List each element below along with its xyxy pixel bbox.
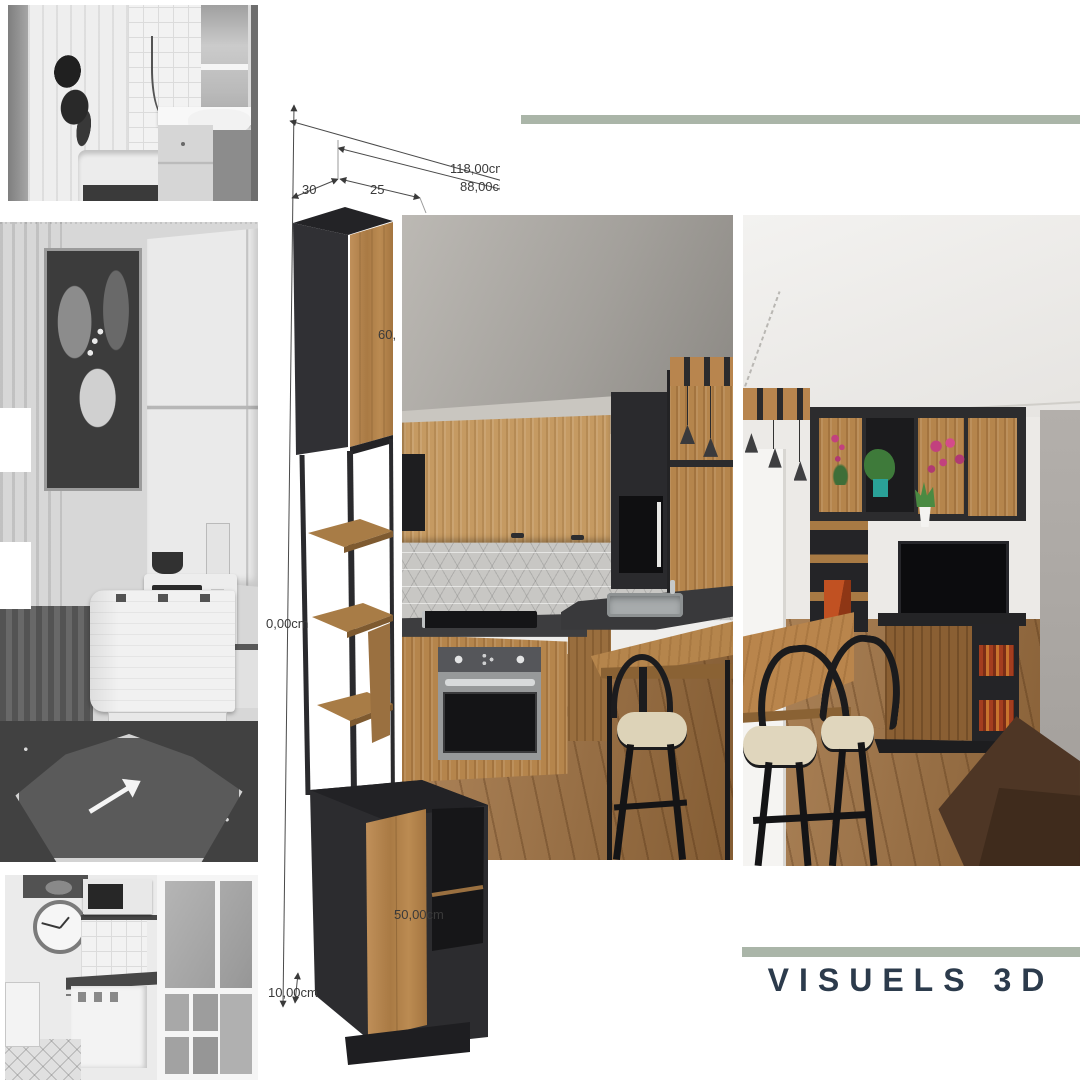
small-kitchen-microwave xyxy=(83,879,151,914)
old-kitchen-box xyxy=(206,523,229,577)
living-pendant-bulb-3 xyxy=(745,433,758,453)
living-pendant-cord-1 xyxy=(773,420,774,449)
bathroom-left-wall xyxy=(8,5,28,201)
old-kitchen-dark-floor xyxy=(0,606,93,734)
accent-bar-bottom xyxy=(742,947,1080,957)
living-plant-white-pot xyxy=(915,482,935,528)
kitchen-faucet xyxy=(670,580,675,594)
render-living-3d xyxy=(743,215,1080,866)
kitchen-cabinet-handle-1 xyxy=(511,533,524,538)
living-plant-green xyxy=(864,449,894,482)
old-kitchen-rug-arrow-icon xyxy=(83,747,150,843)
dim-label-plinth: 10,00cm xyxy=(268,985,318,1000)
old-kitchen-artwork-canvas xyxy=(47,251,139,488)
dim-label-depth: 30 xyxy=(302,182,316,197)
living-white-pot-body xyxy=(919,507,930,528)
photo-bathroom-before xyxy=(8,5,258,201)
old-kitchen-artwork xyxy=(44,248,142,491)
bathroom-vanity-doors xyxy=(158,125,213,201)
kitchen-sink xyxy=(607,593,683,618)
living-pendant-bulb-2 xyxy=(794,461,807,481)
photo-old-kitchen-main xyxy=(0,222,258,862)
small-kitchen-picture xyxy=(23,875,89,898)
kitchen-right-column xyxy=(667,370,733,609)
living-orange-box xyxy=(824,580,851,619)
living-unit-panel-3 xyxy=(968,418,1018,516)
kitchen-cabinet-handle-2 xyxy=(571,535,584,540)
living-plant-pot-teal xyxy=(873,479,888,497)
partition-panel-3 xyxy=(165,994,189,1031)
photo-old-kitchen-small xyxy=(5,875,258,1080)
dim-label-inner-width: 88,00cm xyxy=(460,179,500,194)
presentation-board: VISUELS 3D xyxy=(0,0,1080,1080)
bathroom-vanity-knob xyxy=(181,142,185,146)
kitchen-pendant-cord-1 xyxy=(687,386,688,425)
living-white-pot-leaves xyxy=(915,482,935,507)
living-beam xyxy=(743,388,810,421)
partition-panel-4 xyxy=(193,994,217,1031)
bathroom-right-edge xyxy=(251,5,259,201)
living-chair-2-seat xyxy=(821,716,875,749)
small-kitchen-partition xyxy=(157,875,258,1080)
small-kitchen-left-cabinet xyxy=(5,982,40,1048)
old-kitchen-bowl xyxy=(152,552,183,574)
kitchen-pendant-cord-2 xyxy=(710,386,711,438)
dim-label-top-door: 60, xyxy=(378,327,396,342)
living-tv xyxy=(898,541,1009,622)
clock-hand-minute xyxy=(41,922,60,929)
old-kitchen-table-slots xyxy=(116,594,219,602)
clock-hand-hour xyxy=(59,916,70,928)
kitchen-table-leg-2 xyxy=(725,660,730,860)
old-kitchen-cutout-bottom xyxy=(0,542,31,609)
dim-label-gap: 25 xyxy=(370,182,384,197)
kitchen-pendant-beam xyxy=(670,357,733,386)
partition-panel-1 xyxy=(165,881,216,988)
dim-label-height-ref: 0,00cm xyxy=(266,616,309,631)
living-plant-orchid-small xyxy=(827,427,854,486)
kitchen-right-shelf-line xyxy=(670,460,733,466)
totem-shelf-drawing: 118,00cm 88,00cm 30 25 0,00cm 60, 50,00c… xyxy=(260,95,500,1070)
old-kitchen-table-leaf xyxy=(90,590,234,712)
dim-label-total-width: 118,00cm xyxy=(450,161,500,176)
small-kitchen-tiles xyxy=(81,920,147,982)
kitchen-microwave-handle xyxy=(657,502,661,567)
living-chair-1-seat xyxy=(743,726,817,765)
kitchen-base-return xyxy=(568,625,611,741)
kitchen-stool-seat xyxy=(617,712,687,747)
partition-panel-2 xyxy=(220,881,252,988)
partition-panel-5 xyxy=(165,1037,189,1074)
partition-panel-6 xyxy=(193,1037,217,1074)
page-title: VISUELS 3D xyxy=(742,962,1080,999)
bathroom-mirror-column xyxy=(201,5,249,107)
bathroom-mirror-shelf xyxy=(201,64,249,70)
accent-bar-top xyxy=(521,115,1080,124)
small-kitchen-microwave-door xyxy=(88,884,124,909)
partition-frame-edge xyxy=(220,994,252,1074)
living-books-row-1 xyxy=(979,645,1014,676)
kitchen-stool-splat xyxy=(639,667,647,719)
dim-label-bottom-cabinet: 50,00cm xyxy=(394,907,444,922)
bathroom-vanity-side xyxy=(213,130,251,201)
living-pendant-cord-2 xyxy=(799,420,800,462)
old-kitchen-cutout-top xyxy=(0,408,31,472)
old-kitchen-wall-cabinets xyxy=(147,228,258,586)
small-kitchen-machine-controls xyxy=(78,992,124,1002)
small-kitchen-machine xyxy=(71,986,147,1068)
